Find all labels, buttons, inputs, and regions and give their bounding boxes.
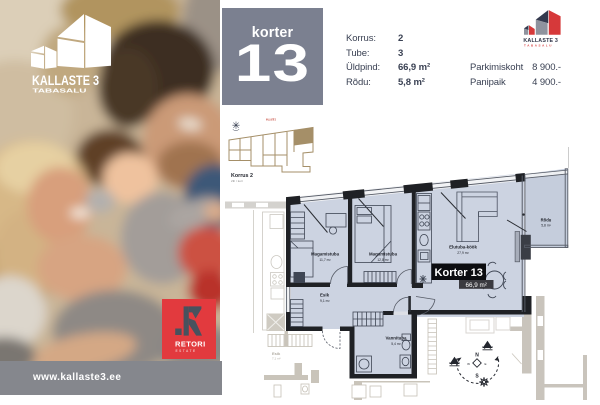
svg-text:11,7 m²: 11,7 m² — [319, 258, 331, 262]
svg-text:Magamistuba: Magamistuba — [311, 252, 340, 257]
svg-text:TABASALU: TABASALU — [33, 89, 87, 95]
svg-text:Vannituba: Vannituba — [386, 336, 408, 341]
svg-text:Korter 13: Korter 13 — [435, 267, 483, 279]
svg-text:KALLASTE 3: KALLASTE 3 — [32, 72, 99, 88]
svg-text:TABASALU: TABASALU — [524, 43, 553, 47]
svg-text:Esik: Esik — [320, 293, 330, 298]
svg-text:Korrus 2: Korrus 2 — [231, 173, 253, 179]
svg-text:W: W — [467, 362, 470, 366]
svg-text:7,1 m²: 7,1 m² — [272, 357, 281, 361]
svg-text:Rõdu: Rõdu — [541, 218, 552, 223]
svg-text:S: S — [475, 374, 479, 380]
svg-text:RETORI: RETORI — [175, 340, 206, 349]
svg-text:ESTATE: ESTATE — [176, 349, 197, 353]
svg-text:Magamistuba: Magamistuba — [369, 252, 398, 257]
svg-text:2th / korr: 2th / korr — [231, 179, 243, 183]
svg-text:N: N — [475, 353, 479, 359]
svg-text:12,8 m²: 12,8 m² — [377, 258, 389, 262]
svg-text:Esik: Esik — [272, 351, 281, 356]
svg-text:5,8 m²: 5,8 m² — [541, 224, 551, 228]
svg-text:E: E — [484, 362, 486, 366]
svg-text:27,9 m²: 27,9 m² — [457, 251, 469, 255]
svg-text:9,1 m²: 9,1 m² — [320, 299, 330, 303]
svg-text:Elutuba-köök: Elutuba-köök — [449, 245, 477, 250]
svg-text:5,4 m²: 5,4 m² — [391, 342, 401, 346]
svg-text:66,9 m²: 66,9 m² — [466, 282, 487, 289]
svg-text:KALLASTE 3: KALLASTE 3 — [266, 119, 277, 122]
